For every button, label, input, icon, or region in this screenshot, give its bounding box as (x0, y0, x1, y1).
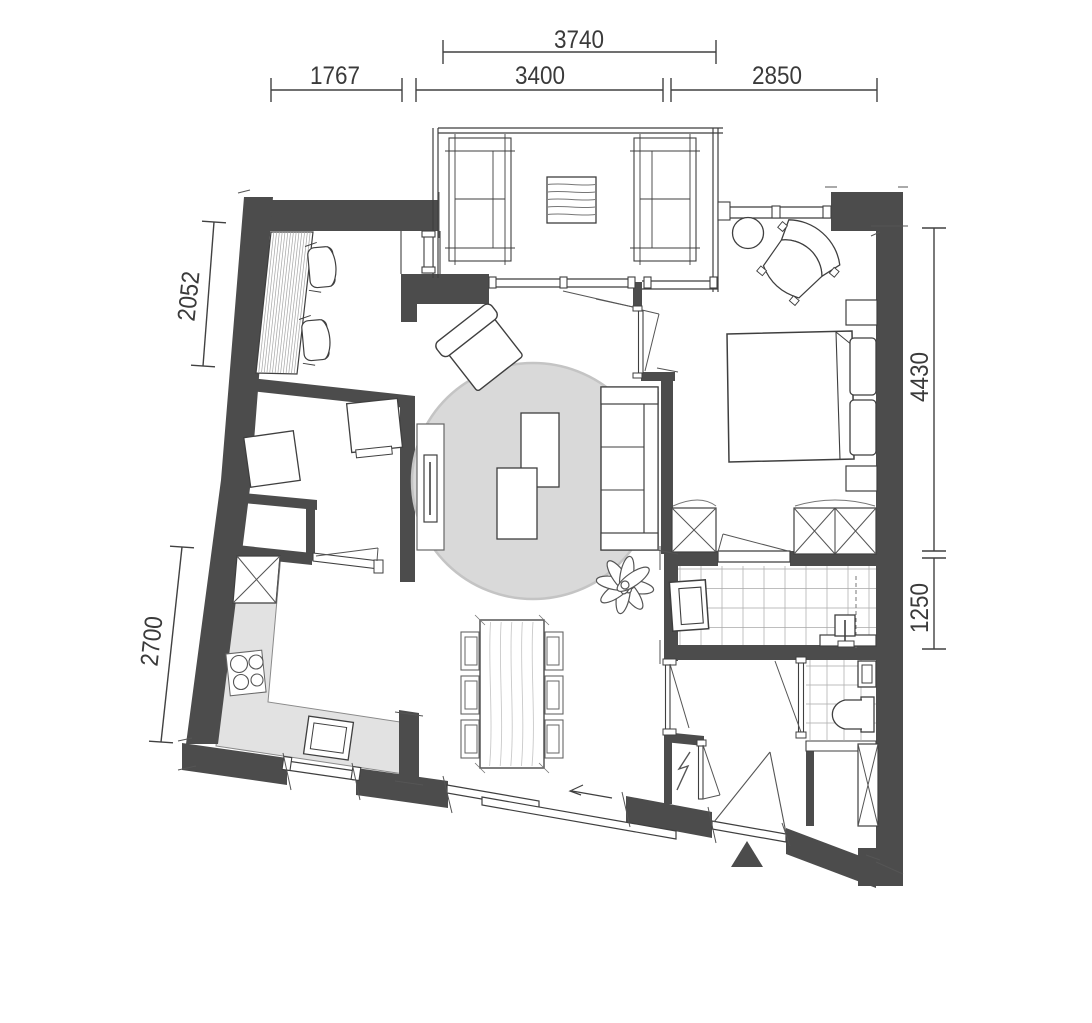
svg-text:4430: 4430 (906, 352, 934, 402)
svg-text:2850: 2850 (752, 62, 802, 90)
svg-text:2700: 2700 (136, 615, 169, 668)
svg-text:1767: 1767 (310, 62, 360, 90)
svg-text:3740: 3740 (554, 26, 604, 54)
svg-text:1250: 1250 (906, 583, 934, 633)
svg-text:2052: 2052 (173, 270, 206, 323)
svg-text:3400: 3400 (515, 62, 565, 90)
